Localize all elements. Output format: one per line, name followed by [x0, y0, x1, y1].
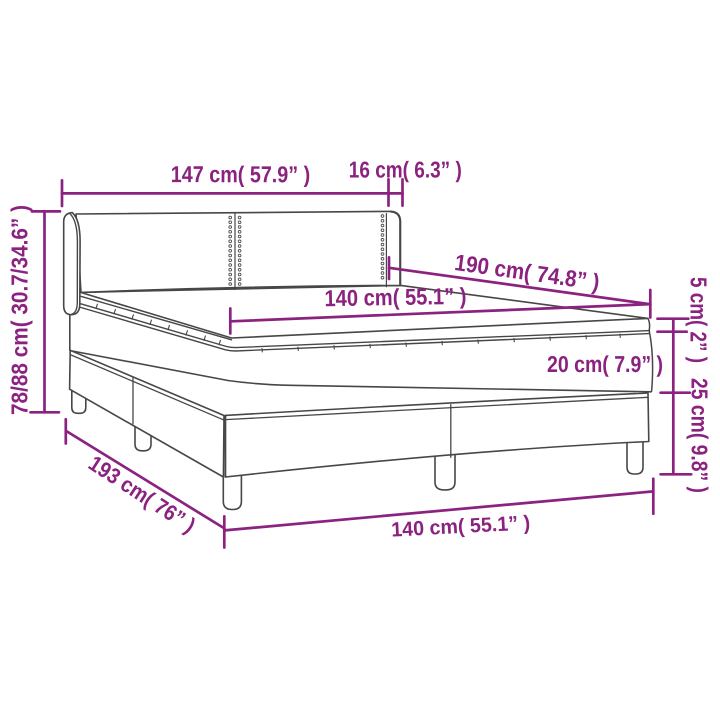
- svg-text:78/88 cm( 30.7/34.6” ): 78/88 cm( 30.7/34.6” ): [7, 205, 33, 415]
- svg-text:16 cm( 6.3” ): 16 cm( 6.3” ): [349, 156, 462, 182]
- svg-text:20 cm( 7.9” ): 20 cm( 7.9” ): [547, 351, 663, 377]
- svg-text:140 cm( 55.1” ): 140 cm( 55.1” ): [324, 283, 466, 311]
- svg-text:147 cm( 57.9” ): 147 cm( 57.9” ): [171, 161, 310, 187]
- svg-text:25 cm( 9.8” ): 25 cm( 9.8” ): [687, 378, 713, 493]
- svg-text:5 cm( 2” ): 5 cm( 2” ): [686, 277, 712, 363]
